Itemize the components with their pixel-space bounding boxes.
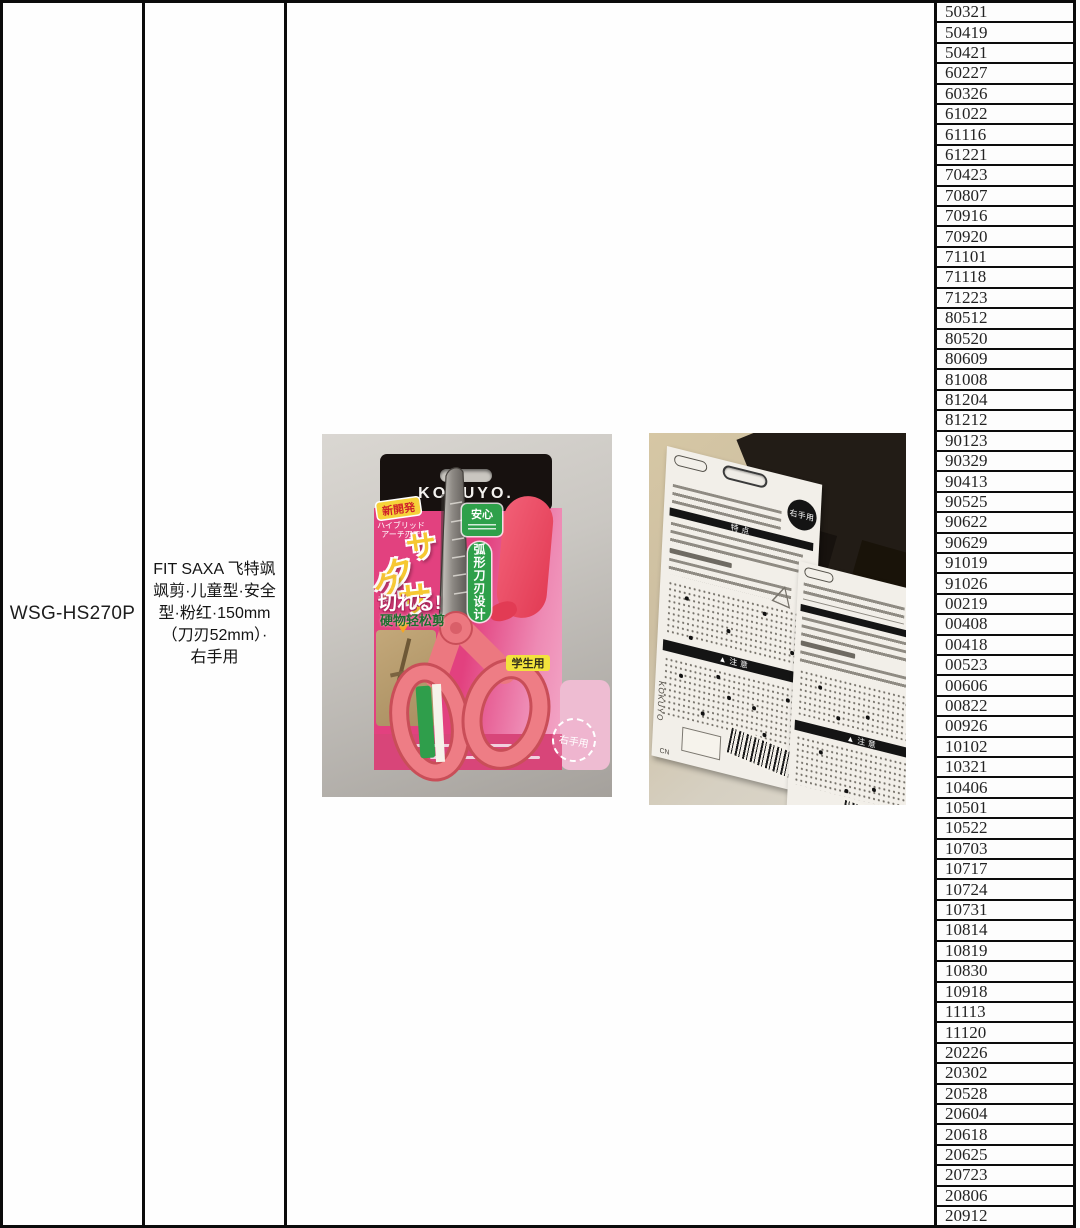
- serial-cell: 00926: [937, 717, 1073, 737]
- brand-small-text: KOKUYO: [655, 680, 666, 722]
- serial-cell: 90525: [937, 493, 1073, 513]
- right-hand-circle-badge: 右手用: [787, 496, 818, 533]
- serial-cell: 20604: [937, 1105, 1073, 1125]
- serial-cell: 81204: [937, 391, 1073, 411]
- serial-cell: 90629: [937, 534, 1073, 554]
- arc-blade-label: 弧形刀刃设计: [468, 542, 491, 622]
- serial-cell: 70916: [937, 207, 1073, 227]
- serial-cell: 50419: [937, 23, 1073, 43]
- model-number: WSG-HS270P: [10, 603, 135, 625]
- model-cell: WSG-HS270P: [3, 3, 145, 1225]
- info-pill-outline: [804, 566, 834, 583]
- serial-cell: 90413: [937, 472, 1073, 492]
- serial-cell: 20625: [937, 1146, 1073, 1166]
- serial-cell: 20806: [937, 1187, 1073, 1207]
- serial-cell: 20912: [937, 1207, 1073, 1225]
- description-cell: FIT SAXA 飞特飒 飒剪·儿童型·安全 型·粉红·150mm （刀刃52m…: [145, 3, 287, 1225]
- serial-cell: 10717: [937, 860, 1073, 880]
- serial-cell: 80520: [937, 330, 1073, 350]
- serial-cell: 10819: [937, 942, 1073, 962]
- serial-cell: 50321: [937, 3, 1073, 23]
- serial-cell: 71118: [937, 268, 1073, 288]
- serial-cell: 20723: [937, 1166, 1073, 1186]
- serial-cell: 81008: [937, 370, 1073, 390]
- serial-cell: 60326: [937, 85, 1073, 105]
- serial-column: 5032150419504216022760326610226111661221…: [937, 3, 1073, 1225]
- student-use-badge: 学生用: [506, 655, 550, 671]
- serial-cell: 91019: [937, 554, 1073, 574]
- serial-cell: 10522: [937, 819, 1073, 839]
- safety-badge: 安心: [462, 504, 502, 536]
- description-line: （刀刃52mm）·: [153, 625, 276, 647]
- serial-cell: 61116: [937, 125, 1073, 145]
- serial-cell: 61022: [937, 105, 1073, 125]
- serial-cell: 71223: [937, 289, 1073, 309]
- product-photo-front: KOKUYO. サ ク サ ク 切れる! 硬物轻松剪 新開発 ハイブリッド アー…: [322, 434, 612, 797]
- back-package-right: ▲注意: [786, 561, 906, 805]
- serial-cell: 80512: [937, 309, 1073, 329]
- serial-cell: 00219: [937, 595, 1073, 615]
- serial-cell: 20302: [937, 1064, 1073, 1084]
- serial-cell: 50421: [937, 44, 1073, 64]
- serial-cell: 10731: [937, 901, 1073, 921]
- serial-cell: 00418: [937, 636, 1073, 656]
- product-description: FIT SAXA 飞特飒 飒剪·儿童型·安全 型·粉红·150mm （刀刃52m…: [153, 559, 276, 669]
- serial-cell: 81212: [937, 411, 1073, 431]
- info-pill-outline: [674, 454, 708, 473]
- serial-cell: 20528: [937, 1085, 1073, 1105]
- scanned-product-table-page: WSG-HS270P FIT SAXA 飞特飒 飒剪·儿童型·安全 型·粉红·1…: [0, 0, 1080, 1228]
- serial-cell: 61221: [937, 146, 1073, 166]
- serial-cell: 10724: [937, 880, 1073, 900]
- serial-cell: 90123: [937, 432, 1073, 452]
- description-line: 型·粉红·150mm: [153, 603, 276, 625]
- serial-cell: 10406: [937, 778, 1073, 798]
- serial-cell: 11120: [937, 1023, 1073, 1043]
- serial-cell: 10814: [937, 921, 1073, 941]
- serial-cell: 10703: [937, 840, 1073, 860]
- serial-cell: 10321: [937, 758, 1073, 778]
- serial-cell: 10830: [937, 962, 1073, 982]
- serial-cell: 90622: [937, 513, 1073, 533]
- serial-cell: 20226: [937, 1044, 1073, 1064]
- serial-cell: 00408: [937, 615, 1073, 635]
- serial-cell: 00606: [937, 676, 1073, 696]
- serial-cell: 70423: [937, 166, 1073, 186]
- serial-cell: 60227: [937, 64, 1073, 84]
- hard-copy-text: 硬物轻松剪: [380, 610, 445, 629]
- serial-cell: 00822: [937, 697, 1073, 717]
- serial-cell: 91026: [937, 574, 1073, 594]
- serial-cell: 20618: [937, 1125, 1073, 1145]
- sub-copy-text: ハイブリッド アーチ刃で: [376, 521, 426, 539]
- record-table: WSG-HS270P FIT SAXA 飞特飒 飒剪·儿童型·安全 型·粉红·1…: [0, 0, 1076, 1228]
- triangle-diagram-icon: △: [771, 577, 796, 610]
- serial-cell: 11113: [937, 1003, 1073, 1023]
- product-photo-back: 右手用 特点 △ ▲注意 KOKUYO CN: [649, 433, 906, 805]
- photos-cell: KOKUYO. サ ク サ ク 切れる! 硬物轻松剪 新開発 ハイブリッド アー…: [287, 3, 937, 1225]
- serial-cell: 10102: [937, 738, 1073, 758]
- description-line: 飒剪·儿童型·安全: [153, 581, 276, 603]
- serial-cell: 80609: [937, 350, 1073, 370]
- address-box: [681, 727, 721, 761]
- description-line: FIT SAXA 飞特飒: [153, 559, 276, 581]
- serial-cell: 10918: [937, 983, 1073, 1003]
- origin-mark: CN: [659, 747, 669, 756]
- serial-cell: 70807: [937, 187, 1073, 207]
- serial-cell: 70920: [937, 227, 1073, 247]
- serial-cell: 71101: [937, 248, 1073, 268]
- serial-cell: 10501: [937, 799, 1073, 819]
- description-line: 右手用: [153, 647, 276, 669]
- serial-cell: 00523: [937, 656, 1073, 676]
- serial-cell: 90329: [937, 452, 1073, 472]
